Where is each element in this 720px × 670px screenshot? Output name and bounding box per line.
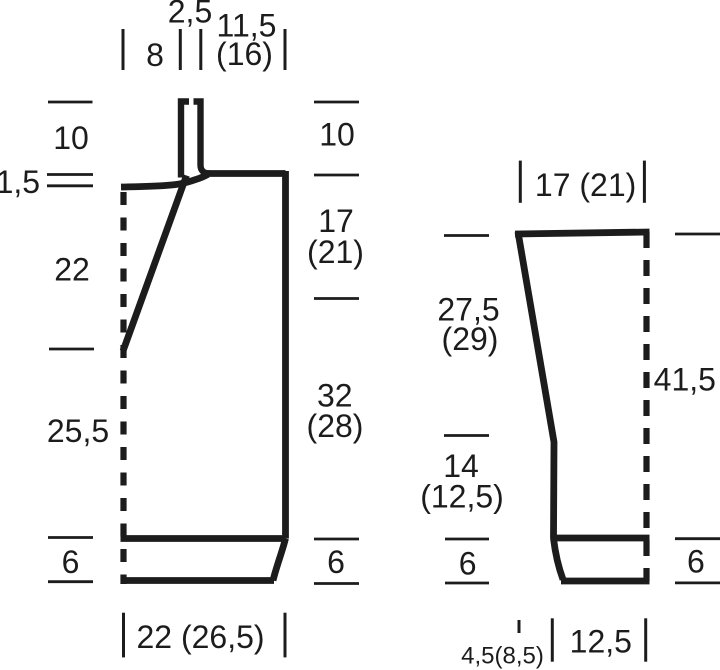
svg-text:6: 6 [459, 546, 477, 582]
svg-text:1,5: 1,5 [0, 164, 40, 200]
svg-text:6: 6 [327, 544, 345, 580]
svg-text:10: 10 [53, 120, 89, 156]
svg-text:(28): (28) [307, 408, 364, 444]
svg-text:25,5: 25,5 [47, 413, 109, 449]
svg-text:4,5(8,5): 4,5(8,5) [461, 643, 544, 670]
svg-text:(21): (21) [307, 234, 364, 270]
svg-text:(16): (16) [216, 36, 273, 72]
svg-text:(12,5): (12,5) [420, 479, 504, 515]
svg-text:6: 6 [62, 544, 80, 580]
svg-text:2,5: 2,5 [168, 0, 212, 30]
svg-text:17 (21): 17 (21) [535, 167, 636, 203]
svg-text:12,5: 12,5 [570, 624, 632, 660]
svg-text:6: 6 [687, 544, 705, 580]
svg-text:(29): (29) [442, 321, 499, 357]
svg-text:22 (26,5): 22 (26,5) [136, 619, 264, 655]
svg-text:41,5: 41,5 [654, 362, 716, 398]
svg-text:8: 8 [146, 37, 164, 73]
svg-text:10: 10 [319, 117, 355, 153]
svg-text:22: 22 [54, 252, 90, 288]
